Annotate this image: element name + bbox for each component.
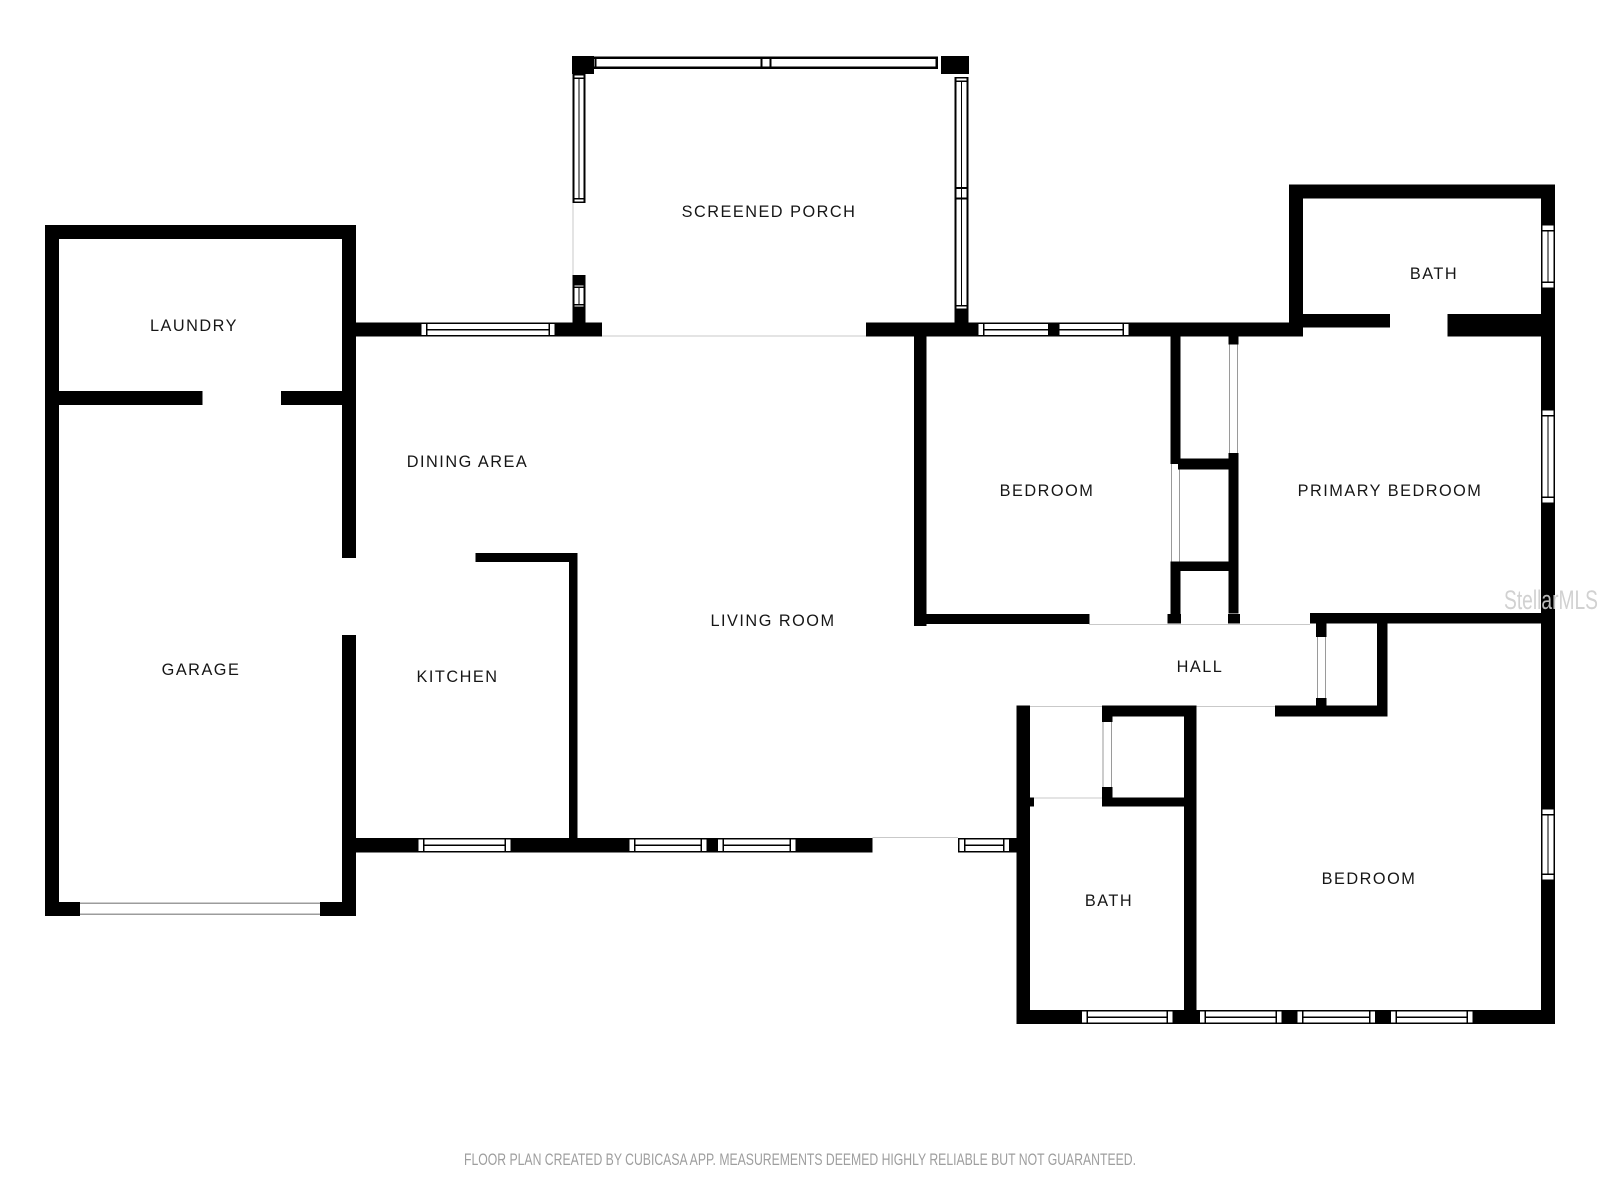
svg-text:BATH: BATH <box>1410 265 1458 283</box>
svg-text:HALL: HALL <box>1177 658 1224 676</box>
svg-text:BEDROOM: BEDROOM <box>1000 482 1095 500</box>
svg-text:StellarMLS: StellarMLS <box>1504 585 1598 615</box>
svg-text:BEDROOM: BEDROOM <box>1322 870 1417 888</box>
svg-text:KITCHEN: KITCHEN <box>417 668 499 686</box>
svg-text:SCREENED PORCH: SCREENED PORCH <box>682 203 857 221</box>
svg-text:DINING AREA: DINING AREA <box>407 453 528 471</box>
svg-text:GARAGE: GARAGE <box>162 661 241 679</box>
svg-text:FLOOR PLAN CREATED BY CUBICASA: FLOOR PLAN CREATED BY CUBICASA APP. MEAS… <box>464 1150 1136 1169</box>
svg-text:PRIMARY BEDROOM: PRIMARY BEDROOM <box>1298 482 1483 500</box>
svg-text:BATH: BATH <box>1085 892 1133 910</box>
svg-text:LAUNDRY: LAUNDRY <box>150 317 238 335</box>
svg-text:LIVING ROOM: LIVING ROOM <box>710 612 835 630</box>
